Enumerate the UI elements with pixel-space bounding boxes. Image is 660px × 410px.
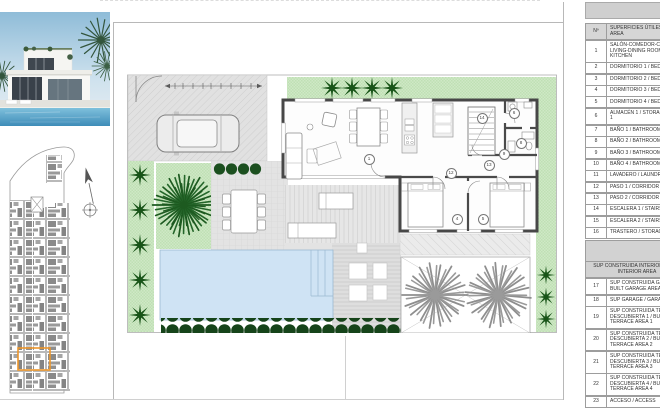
room-name: DORMITORIO 3 / BEDROOM 3 [607,86,660,96]
legend-row: 10 BAÑO 4 / BATHROOM 4 [585,159,660,171]
star-plant-icon [381,77,403,99]
room-name: ESCALERA 2 / STAIRS 2 [607,217,660,227]
room-number: 9 [586,148,607,158]
room-name: SUP GARAGE / GARAGE AREA [607,296,660,306]
frame-vline-left [113,22,114,400]
legend-row: 13 PASO 2 / CORRIDOR 2 [585,193,660,205]
room-name: BAÑO 4 / BATHROOM 4 [607,160,660,170]
room-number-label: 13 [484,160,495,171]
room-number: 5 [586,97,607,107]
legend-table: Nº SUPERFICIES ÚTILES / FLOOR AREA 1 SAL… [585,2,660,408]
room-number-label: 9 [499,149,510,160]
bush-icon [238,163,249,174]
star-plant-icon [129,269,151,291]
room-number: 23 [586,397,607,407]
room-name: DORMITORIO 2 / BEDROOM 2 [607,75,660,85]
room-number: 21 [586,352,607,373]
legend-row: 9 BAÑO 3 / BATHROOM 3 [585,147,660,159]
armchair [322,112,337,127]
room-number: 7 [586,126,607,136]
villa-render-photo [0,12,110,126]
star-plant-icon [129,304,151,326]
legend-row: 5 DORMITORIO 4 / BEDROOM 4 [585,96,660,108]
frame-vline-titleblock [345,336,346,399]
legend-row: 7 BAÑO 1 / BATHROOM 1 [585,125,660,137]
room-number: 8 [586,137,607,147]
legend-row: 15 ESCALERA 2 / STAIRS 2 [585,216,660,228]
room-name: ACCESO / ACCESS [607,397,660,407]
legend-row: 12 PASO 1 / CORRIDOR 1 [585,182,660,194]
room-name: BAÑO 1 / BATHROOM 1 [607,126,660,136]
room-number-label: 6 [509,108,520,119]
room-name: LAVADERO / LAUNDRY ROOM [607,171,660,181]
room-number-label: 4 [452,214,463,225]
room-name: DORMITORIO 4 / BEDROOM 4 [607,97,660,107]
room-number: 2 [586,63,607,73]
star-plant-icon [361,77,383,99]
frame-vline-right [563,2,564,400]
room-number-label: 1 [364,154,375,165]
legend-spacer-band [585,240,660,262]
legend-row: 20 SUP CONSTRUIDA TERRAZA DESCUBIERTA 2 … [585,329,660,352]
legend-row: 4 DORMITORIO 3 / BEDROOM 3 [585,85,660,97]
bush-icon [214,163,225,174]
room-number-label: 12 [446,168,457,179]
room-number: 17 [586,279,607,294]
legend-rows-built: 17 SUP CONSTRUIDA GARAGE / BUILT GARAGE … [585,278,660,408]
legend-title-band [585,2,660,19]
room-number: 18 [586,296,607,306]
star-plant-icon [341,77,363,99]
room-number: 4 [586,86,607,96]
room-name: SUP CONSTRUIDA TERRAZA DESCUBIERTA 1 / B… [607,307,660,328]
star-plant-icon [129,234,151,256]
room-name: SUP CONSTRUIDA TERRAZA DESCUBIERTA 3 / B… [607,352,660,373]
room-number: 10 [586,160,607,170]
room-number-label: 14 [477,113,488,124]
frame-hline-top [113,22,563,23]
plot-block [55,203,70,391]
north-arrow-icon [82,167,98,205]
legend-row: 17 SUP CONSTRUIDA GARAGE / BUILT GARAGE … [585,278,660,295]
legend-row: 14 ESCALERA 1 / STAIRS 1 [585,204,660,216]
room-name: SUP CONSTRUIDA GARAGE / BUILT GARAGE ARE… [607,279,660,294]
bush-icon [226,163,237,174]
legend-row: 23 ACCESO / ACCESS [585,396,660,408]
room-number: 22 [586,374,607,395]
room-number: 6 [586,109,607,124]
legend-rows: 1 SALÓN-COMEDOR-COCINA / LIVING-DINING R… [585,40,660,239]
sun-lounger [288,223,336,238]
room-name: SUP CONSTRUIDA TERRAZA DESCUBIERTA 2 / B… [607,330,660,351]
legend-row: 8 BAÑO 2 / BATHROOM 2 [585,136,660,148]
legend-row: 16 TRASTERO / STORAGE ROOM [585,227,660,239]
legend-row: 11 LAVADERO / LAUNDRY ROOM [585,170,660,182]
plot-block [33,207,55,391]
toilet-icon [526,142,532,150]
room-name: PASO 2 / CORRIDOR 2 [607,194,660,204]
room-name: DORMITORIO 1 / BEDROOM 1 [607,63,660,73]
sun-lounger [319,193,353,209]
room-number-label: 5 [478,214,489,225]
star-plant-icon [537,266,556,285]
floor-plan: 1 14 6 8 9 13 12 4 5 [127,53,557,333]
room-name: BAÑO 2 / BATHROOM 2 [607,137,660,147]
room-name: ESCALERA 1 / STAIRS 1 [607,205,660,215]
frame-hline-bottom [0,399,563,400]
legend-row: 6 ALMACÉN 1 / STORAGE ROOM 1 [585,108,660,125]
room-number: 12 [586,183,607,193]
outdoor-dining-set [223,190,266,233]
roof-overhang [6,70,92,74]
room-name: SUP CONSTRUIDA TERRAZA DESCUBIERTA 4 / B… [607,374,660,395]
room-number-label: 8 [516,138,527,149]
garden-strip-top [287,77,556,102]
bush-icon [250,163,261,174]
room-number: 15 [586,217,607,227]
room-number: 13 [586,194,607,204]
star-plant-icon [129,199,151,221]
star-plant-icon [537,288,556,307]
room-name: BAÑO 3 / BATHROOM 3 [607,148,660,158]
hedge-row [161,318,401,333]
legend-header: Nº SUPERFICIES ÚTILES / FLOOR AREA [585,23,660,40]
sun-lounger [20,100,31,104]
sheet-top-dashes [100,0,540,1]
star-plant-icon [129,164,151,186]
room-name: TRASTERO / STORAGE ROOM [607,228,660,238]
star-plant-icon [321,77,343,99]
room-number: 20 [586,330,607,351]
legend-header-number: Nº [586,24,607,39]
sink-icon [405,119,414,125]
dining-table [357,108,380,146]
plan-sheet: { "legend": { "header": { "num_label": "… [0,0,660,410]
room-number: 1 [586,41,607,62]
nightstand [525,183,531,191]
legend-row: 3 DORMITORIO 2 / BEDROOM 2 [585,74,660,86]
room-number: 3 [586,75,607,85]
floor-lamp-icon [307,124,313,130]
plot-block [10,200,32,391]
rear-terrace [400,234,530,255]
legend-row: 1 SALÓN-COMEDOR-COCINA / LIVING-DINING R… [585,40,660,63]
site-plan [2,143,104,399]
room-number: 11 [586,171,607,181]
legend-row: 22 SUP CONSTRUIDA TERRAZA DESCUBIERTA 4 … [585,373,660,396]
legend-row: 19 SUP CONSTRUIDA TERRAZA DESCUBIERTA 1 … [585,306,660,329]
sofa [286,133,302,179]
legend-row: 18 SUP GARAGE / GARAGE AREA [585,295,660,307]
room-name: SALÓN-COMEDOR-COCINA / LIVING-DINING ROO… [607,41,660,62]
room-name: ALMACÉN 1 / STORAGE ROOM 1 [607,109,660,124]
swimming-pool [160,250,333,320]
room-number: 14 [586,205,607,215]
legend-row: 21 SUP CONSTRUIDA TERRAZA DESCUBIERTA 3 … [585,351,660,374]
room-number: 16 [586,228,607,238]
plot-block [46,155,62,183]
star-plant-icon [537,310,556,329]
lower-glazing [12,77,42,102]
legend-row: 2 DORMITORIO 1 / BEDROOM 1 [585,62,660,74]
terrace-glazing [48,79,82,102]
sun-lounger [6,100,17,104]
car [157,112,239,156]
room-number: 19 [586,307,607,328]
room-name: PASO 1 / CORRIDOR 1 [607,183,660,193]
legend-header-area: SUPERFICIES ÚTILES / FLOOR AREA [607,24,660,39]
legend-section-title: SUP CONSTRUIDA INTERIOR / BUILT INTERIOR… [585,261,660,278]
nightstand [402,183,408,191]
